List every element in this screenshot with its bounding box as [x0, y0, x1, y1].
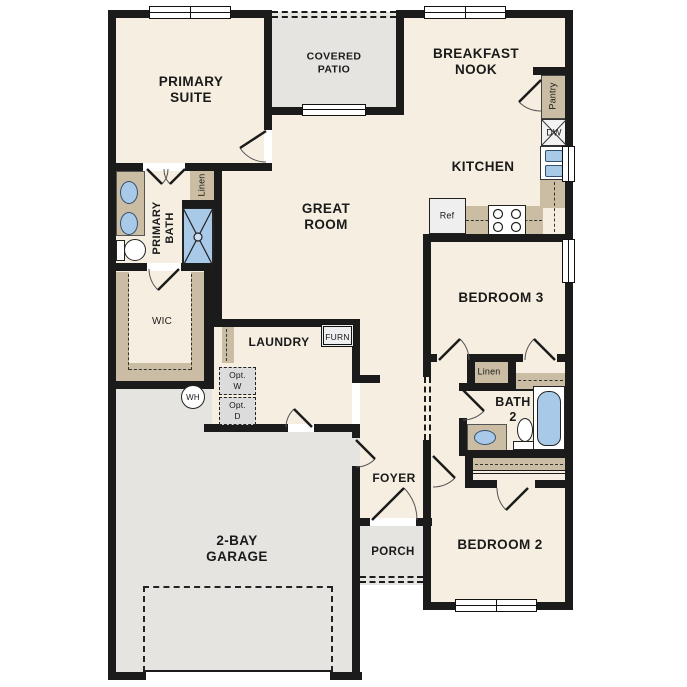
label-refrigerator: Ref: [440, 211, 455, 222]
label-linen-lower: Linen: [477, 367, 500, 378]
opt-washer-line1: Opt.: [220, 370, 255, 381]
label-primary-bath: PRIMARYBATH: [151, 201, 177, 254]
water-heater: WH: [181, 385, 205, 409]
label-porch: PORCH: [371, 546, 415, 560]
label-dishwasher: DW: [546, 128, 561, 139]
furnace-label: FURN: [325, 332, 349, 342]
opt-washer-box: Opt. W: [219, 367, 256, 395]
label-covered-patio: COVEREDPATIO: [307, 50, 362, 75]
label-garage: 2-BAYGARAGE: [206, 533, 268, 565]
opt-dryer-line1: Opt.: [220, 400, 255, 411]
floor-plan: FURN Opt. W Opt. D WH PRIMARYSUITE COVER…: [0, 0, 687, 687]
label-pantry: Pantry: [548, 82, 559, 109]
stove-burners: [494, 210, 521, 232]
label-kitchen: KITCHEN: [452, 159, 515, 175]
water-heater-label: WH: [186, 393, 200, 402]
opt-dryer-line2: D: [220, 411, 255, 422]
label-bedroom2: BEDROOM 2: [457, 537, 542, 553]
opt-dryer-box: Opt. D: [219, 397, 256, 425]
label-laundry: LAUNDRY: [248, 335, 309, 349]
label-wic: WIC: [152, 316, 172, 328]
label-bedroom3: BEDROOM 3: [458, 290, 543, 306]
label-bath2: BATH2: [495, 395, 530, 425]
label-linen-upper: Linen: [197, 173, 208, 196]
label-primary-suite: PRIMARYSUITE: [159, 74, 224, 106]
shower-glass-x: [183, 208, 213, 266]
label-foyer: FOYER: [372, 471, 415, 485]
label-great-room: GREATROOM: [302, 201, 350, 233]
label-breakfast-nook: BREAKFASTNOOK: [433, 46, 519, 78]
opt-washer-line2: W: [220, 381, 255, 392]
furnace-box: FURN: [321, 324, 354, 347]
